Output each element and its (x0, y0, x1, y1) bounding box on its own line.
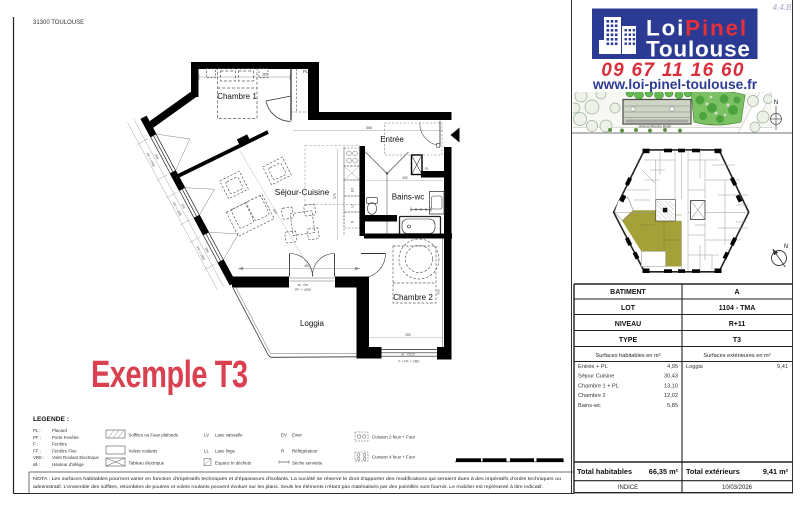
svg-text:Total extérieurs: Total extérieurs (686, 467, 740, 476)
svg-text:Toulouse: Toulouse (646, 37, 751, 62)
svg-text:Placard: Placard (52, 428, 67, 433)
svg-text:PF :: PF : (33, 435, 41, 440)
svg-text:Surfaces habitables en m²: Surfaces habitables en m² (596, 353, 661, 359)
svg-text:LEGENDE :: LEGENDE : (33, 416, 69, 423)
svg-text:PL: PL (303, 69, 309, 74)
svg-text:LV: LV (351, 203, 355, 208)
svg-text:Surfaces extérieures en m²: Surfaces extérieures en m² (703, 353, 770, 359)
svg-text:EV: EV (351, 187, 355, 192)
svg-text:Exemple T3: Exemple T3 (91, 353, 248, 396)
svg-text:Loggia: Loggia (686, 364, 704, 370)
svg-text:all :: all : (33, 462, 40, 467)
svg-text:BATIMENT: BATIMENT (610, 289, 646, 296)
svg-text:285: 285 (405, 333, 411, 337)
svg-text:Chambre 2: Chambre 2 (578, 393, 606, 399)
svg-text:Bains-wc: Bains-wc (392, 193, 424, 202)
svg-text:T3: T3 (733, 337, 741, 344)
svg-text:Soffites ou Faux plafonds: Soffites ou Faux plafonds (129, 433, 179, 438)
svg-text:F :: F : (33, 442, 38, 447)
svg-text:152: 152 (180, 203, 186, 210)
svg-text:LV: LV (204, 433, 209, 438)
svg-text:LL: LL (204, 449, 209, 454)
svg-text:Fenêtre: Fenêtre (52, 442, 68, 447)
svg-text:LOT: LOT (621, 305, 636, 312)
svg-text:N: N (774, 99, 779, 106)
svg-text:R+11: R+11 (729, 321, 746, 328)
svg-text:R: R (351, 220, 355, 223)
svg-text:EV: EV (281, 433, 287, 438)
svg-text:1104 - TMA: 1104 - TMA (719, 305, 756, 312)
svg-text:Hauteur d'allège: Hauteur d'allège (52, 462, 84, 467)
svg-text:Espace tri déchets: Espace tri déchets (215, 461, 252, 466)
svg-text:F + PF + VRE: F + PF + VRE (398, 360, 420, 364)
svg-text:Réfrigérateur: Réfrigérateur (292, 449, 318, 454)
svg-text:Fenêtre Fixe: Fenêtre Fixe (52, 448, 77, 453)
svg-text:380: 380 (262, 73, 268, 77)
svg-text:Loggia: Loggia (300, 319, 325, 328)
svg-text:Tableau électrique: Tableau électrique (129, 461, 165, 466)
svg-text:31300 TOULOUSE: 31300 TOULOUSE (33, 20, 84, 26)
svg-text:Volet Roulant Electrique: Volet Roulant Electrique (52, 455, 99, 460)
svg-text:Chambre 1: Chambre 1 (217, 92, 257, 101)
svg-text:Volets roulants: Volets roulants (129, 449, 159, 454)
svg-text:FF :: FF : (33, 448, 41, 453)
svg-text:A: A (734, 289, 739, 296)
svg-text:TYPE: TYPE (619, 337, 638, 344)
svg-text:Bains-wc: Bains-wc (578, 403, 601, 409)
svg-text:al : 75cm: al : 75cm (401, 352, 415, 356)
svg-text:N: N (784, 243, 789, 250)
svg-text:administratif. L'ensemble des: administratif. L'ensemble des soffites, … (33, 484, 543, 489)
svg-text:5,85: 5,85 (667, 403, 678, 409)
svg-text:Séjour Cuisine: Séjour Cuisine (578, 374, 614, 380)
svg-text:PF + VRE: PF + VRE (295, 288, 312, 292)
svg-text:560: 560 (366, 126, 372, 130)
svg-text:PL: PL (425, 167, 429, 171)
svg-text:Entrée + PL: Entrée + PL (578, 364, 608, 370)
svg-text:VRE :: VRE : (33, 455, 44, 460)
svg-text:al : 0m: al : 0m (298, 283, 309, 287)
svg-text:30,43: 30,43 (664, 374, 678, 380)
svg-text:NIVEAU: NIVEAU (615, 321, 641, 328)
svg-text:13,10: 13,10 (664, 383, 678, 389)
svg-text:Séjour-Cuisine: Séjour-Cuisine (275, 187, 330, 197)
svg-text:9,41 m²: 9,41 m² (763, 467, 789, 476)
svg-text:12,02: 12,02 (664, 393, 678, 399)
svg-text:294: 294 (154, 153, 160, 160)
svg-text:R: R (281, 449, 284, 454)
svg-text:410: 410 (437, 289, 441, 295)
svg-text:Lave vaisselle: Lave vaisselle (215, 433, 243, 438)
svg-text:575: 575 (333, 193, 337, 199)
svg-text:Porte Fenêtre: Porte Fenêtre (52, 435, 79, 440)
svg-text:www.loi-pinel-toulouse.fr: www.loi-pinel-toulouse.fr (592, 77, 758, 92)
svg-text:294: 294 (204, 247, 210, 254)
svg-text:Sèche serviette: Sèche serviette (292, 461, 323, 466)
svg-text:Avenue Maurice Bedel: Avenue Maurice Bedel (639, 124, 671, 128)
svg-text:Entrée: Entrée (380, 135, 404, 144)
svg-text:Cuisson 4 feux + Four: Cuisson 4 feux + Four (372, 455, 416, 460)
svg-text:Evier: Evier (292, 433, 303, 438)
svg-text:355: 355 (402, 176, 408, 180)
svg-text:Chambre 1 + PL: Chambre 1 + PL (578, 383, 619, 389)
svg-text:Chambre 2: Chambre 2 (393, 293, 433, 302)
svg-text:4,95: 4,95 (667, 364, 678, 370)
svg-text:10/03/2026: 10/03/2026 (722, 485, 753, 491)
svg-text:Total habitables: Total habitables (577, 467, 632, 476)
svg-text:66,35 m²: 66,35 m² (649, 467, 679, 476)
svg-text:NOTA : Les surfaces habitables: NOTA : Les surfaces habitables pourront … (33, 476, 562, 481)
svg-text:Cuisson 2 feux + Four: Cuisson 2 feux + Four (372, 435, 416, 440)
svg-text:INDICE: INDICE (618, 485, 638, 491)
svg-text:4.4.B: 4.4.B (773, 3, 792, 12)
svg-text:PL :: PL : (33, 428, 41, 433)
svg-text:Lave linge: Lave linge (215, 449, 236, 454)
svg-text:9,41: 9,41 (777, 364, 788, 370)
